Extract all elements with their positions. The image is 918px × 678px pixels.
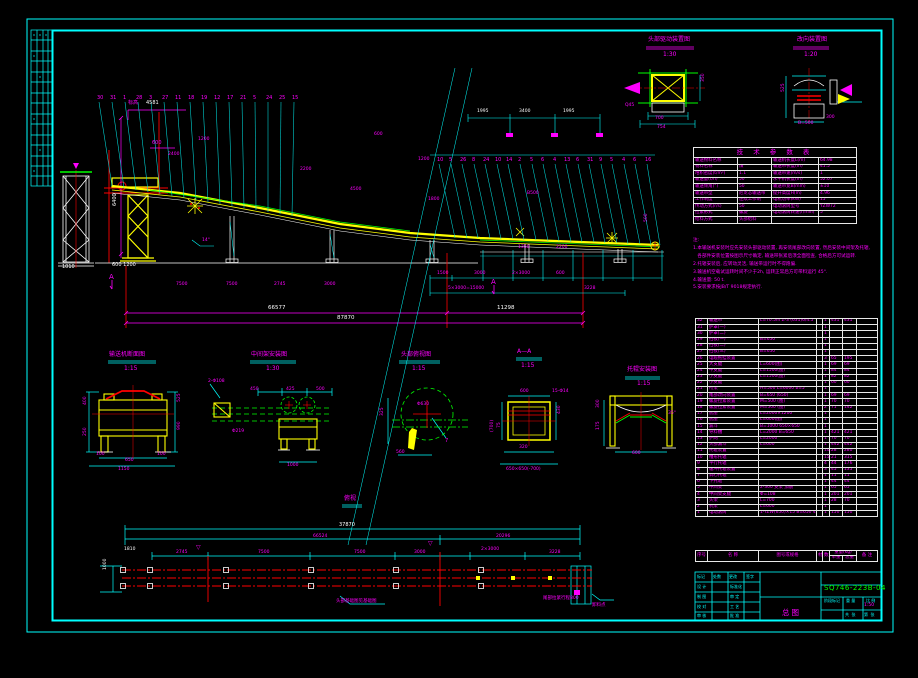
- annotation-label: 第 张: [864, 613, 875, 617]
- annotation-label: 600: [520, 390, 529, 395]
- note-line: 2.托辊安装后, 应转动灵活, 输送带运行时不得跑偏.: [693, 261, 878, 269]
- annotation-label: 20296: [496, 535, 510, 540]
- note-line: 5.安装要求按JB/T 9018规定执行.: [693, 284, 878, 292]
- balloon-leader-line: [216, 102, 220, 204]
- annotation-label: 990: [178, 421, 183, 430]
- item-balloon-number: 24: [483, 158, 489, 163]
- annotation-label: 2×3000: [481, 548, 499, 553]
- annotation-label: 1995: [477, 110, 488, 115]
- balloon-leader-line: [242, 102, 244, 208]
- annotation-label: 300: [597, 399, 602, 408]
- annotation-label: 俯视: [344, 496, 356, 502]
- annotation-label: 7500: [226, 283, 237, 288]
- bom-header: 序号 名 称 图号或规格 材料 数量 重量(kg) 备 注 单重 总重: [695, 550, 878, 562]
- annotation-label: 3400: [519, 110, 530, 115]
- annotation-label: 425: [286, 388, 295, 393]
- item-balloon-number: 21: [240, 96, 246, 101]
- annotation-label: 1150: [118, 468, 129, 473]
- note-line: 注:: [693, 237, 878, 245]
- annotation-label: 2745: [176, 551, 187, 556]
- annotation-label: 1500: [437, 272, 448, 277]
- item-balloon-number: 6: [576, 158, 579, 163]
- annotation-label: 2200: [300, 168, 311, 173]
- bom-col-name: 名 称: [708, 551, 759, 562]
- item-balloon-number: 19: [201, 96, 207, 101]
- bom-row: 1电动滚筒1-YZW(650)×15 B=650 45r/min 1150150: [696, 510, 878, 516]
- cad-drawing-page: 技 术 参 数 表 输送物料名称输送机长度L(m)64.98 物料名称煤输送带长…: [0, 0, 918, 678]
- annotation-label: 4500: [350, 188, 361, 193]
- bom-col-remark: 备 注: [857, 551, 878, 562]
- annotation-label: 500: [645, 213, 650, 222]
- item-balloon-number: 3: [149, 96, 152, 101]
- elevation-dimensions: [110, 68, 662, 545]
- annotation-label: 600 1200: [112, 263, 136, 268]
- annotation-label: 校 对: [697, 605, 706, 609]
- item-balloon-number: 5: [449, 158, 452, 163]
- drawing-number: SQ746-223B-04: [824, 585, 886, 592]
- annotation-label: 输送机断面图: [109, 352, 145, 358]
- annotation-label: 650: [125, 459, 134, 464]
- balloon-leader-line: [520, 164, 536, 240]
- annotation-label: 工 艺: [730, 605, 739, 609]
- annotation-label: 1350: [518, 246, 529, 251]
- annotation-label: 7500: [258, 551, 269, 556]
- item-balloon-number: 5: [253, 96, 256, 101]
- plan-view: [100, 505, 614, 606]
- annotation-label: 500: [316, 388, 325, 393]
- item-balloon-number: 18: [188, 96, 194, 101]
- section-view-trough-idler: [604, 377, 676, 452]
- detail-view-drive-device: [624, 47, 705, 128]
- item-balloon-number: 27: [162, 96, 168, 101]
- annotation-label: 重 量: [846, 599, 855, 603]
- detail-view-bend-device: [786, 47, 862, 124]
- annotation-label: Φ630: [417, 403, 429, 408]
- balloon-leader-line: [508, 164, 524, 240]
- annotation-label: 100: [157, 453, 166, 458]
- annotation-label: 头部基础图见基础图: [336, 600, 377, 605]
- annotation-label: 1:30: [266, 366, 279, 372]
- annotation-label: ▽: [428, 541, 433, 547]
- item-balloon-number: 31: [587, 158, 593, 163]
- annotation-label: 754: [657, 126, 666, 131]
- balloon-leader-line: [177, 102, 184, 198]
- annotation-label: 签字: [746, 575, 754, 579]
- tech-param-row: 输送量(t/h)50水平机长度(m)52.07: [694, 177, 857, 184]
- annotation-label: 600: [152, 141, 162, 146]
- annotation-label: 阶段标记: [824, 599, 840, 603]
- note-line: 各部件安装位置按图示尺寸确定, 输送带张紧后须全面检查, 合格后方可试运转.: [693, 253, 878, 261]
- support-bents: [226, 216, 626, 263]
- annotation-label: 1000: [104, 559, 109, 570]
- annotation-label: 3000: [324, 283, 335, 288]
- balloon-leader-line: [190, 102, 196, 200]
- annotation-label: 1:30: [663, 52, 676, 58]
- annotation-label: 1800: [428, 198, 439, 203]
- annotation-label: Φ219: [232, 430, 244, 435]
- annotation-label: 2-Φ108: [208, 380, 225, 385]
- annotation-label: 标高: [128, 101, 138, 106]
- section-view-a-a: [500, 358, 558, 464]
- annotation-label: 托辊安装图: [627, 367, 657, 373]
- balloon-leader-line: [203, 102, 208, 202]
- balloon-leader-line: [125, 102, 136, 190]
- annotation-label: 700: [655, 117, 664, 122]
- annotation-label: 450: [250, 388, 259, 393]
- annotation-label: 1810: [124, 548, 135, 553]
- annotation-label: 600: [632, 452, 641, 457]
- annotation-label: 66524: [313, 535, 327, 540]
- annotation-label: 3228: [549, 551, 560, 556]
- annotation-label: 设 计: [697, 585, 706, 589]
- annotation-label: 300: [826, 116, 835, 121]
- note-line: 4.输送量: 50 t.: [693, 277, 878, 285]
- item-balloon-number: 11: [175, 96, 181, 101]
- bom-col-spec: 图号或规格: [759, 551, 817, 562]
- annotation-label: 2200: [556, 246, 567, 251]
- item-balloon-number: 25: [279, 96, 285, 101]
- revision-register-table: [31, 30, 53, 186]
- tech-param-row: 传动方式(r/s)50电动滚筒型号YZW72: [694, 204, 857, 211]
- balloon-leader-line: [164, 102, 172, 196]
- bom-col-total-weight: 总重: [843, 556, 857, 561]
- annotation-label: 头部驱动装置图: [648, 37, 690, 43]
- annotation-label: 1000: [287, 464, 298, 469]
- annotation-label: 175: [597, 421, 602, 430]
- annotation-label: 3000: [414, 551, 425, 556]
- item-balloon-number: 17: [227, 96, 233, 101]
- annotation-label: 审 核: [697, 614, 706, 618]
- annotation-label: 7500: [176, 283, 187, 288]
- annotation-label: 87870: [337, 316, 355, 322]
- annotation-label: 共 张: [845, 613, 856, 617]
- annotation-label: 1200: [198, 138, 209, 143]
- item-balloon-number: 26: [460, 158, 466, 163]
- annotation-label: ▽: [196, 545, 201, 551]
- annotation-label: A: [109, 274, 114, 281]
- drawing-scale: 1:50: [864, 604, 874, 609]
- item-balloon-number: 8: [472, 158, 475, 163]
- item-balloon-number: 30: [97, 96, 103, 101]
- balloon-leader-line: [255, 102, 256, 210]
- item-balloon-number: 4: [553, 158, 556, 163]
- annotation-label: 430: [558, 405, 563, 414]
- annotation-label: 15-Φ14: [552, 390, 569, 395]
- tech-param-row: 工作制度连续工作制电机功率(kW)15: [694, 197, 857, 204]
- balloon-leader-line: [612, 164, 628, 244]
- annotation-label: 400: [84, 396, 89, 405]
- annotation-label: B=500: [798, 122, 813, 127]
- item-balloon-number: 6: [541, 158, 544, 163]
- annotation-label: 1:15: [124, 366, 137, 372]
- annotation-label: 尾部拉紧行程800: [543, 597, 579, 602]
- general-notes: 注:1.本输送机安装时应先安装头部驱动装置, 再安装尾部改向装置, 然后安装中间…: [693, 237, 878, 292]
- annotation-label: 600: [374, 133, 383, 138]
- tech-param-row: 拉紧形式螺旋电动滚筒转速(r/min)5: [694, 210, 857, 217]
- annotation-label: 525: [782, 83, 787, 92]
- bom-col-unit-weight: 单重: [830, 556, 843, 561]
- annotation-label: 处数: [713, 575, 721, 579]
- section-view-cross-section: [86, 361, 178, 466]
- tech-params-title: 技 术 参 数 表: [694, 148, 857, 158]
- item-balloon-number: 28: [136, 96, 142, 101]
- left-lattice-tower: [58, 163, 94, 268]
- annotation-label: 1:20: [804, 52, 817, 58]
- item-balloon-number: 9: [599, 158, 602, 163]
- item-balloon-number: 16: [645, 158, 651, 163]
- annotation-label: 350: [702, 73, 707, 82]
- annotation-label: 更改: [729, 575, 737, 579]
- balloon-leader-line: [647, 164, 660, 245]
- annotation-label: 14°: [202, 239, 210, 244]
- bom-col-qty: 数量: [823, 551, 830, 562]
- annotation-label: 37870: [339, 523, 355, 528]
- annotation-label: 560: [396, 451, 405, 456]
- item-balloon-number: 5: [610, 158, 613, 163]
- bom-table: 32输送带L=70.5m Z-3 (631)6/4.5 1431431 31护罩…: [695, 318, 878, 517]
- item-balloon-number: 15: [292, 96, 298, 101]
- section-view-top-detail: [388, 361, 468, 455]
- annotation-label: 525: [178, 393, 183, 402]
- annotation-label: 比 例: [866, 599, 875, 603]
- annotation-label: 1995: [563, 110, 574, 115]
- annotation-label: 改向装置图: [797, 37, 827, 43]
- annotation-label: 600: [556, 272, 565, 277]
- annotation-label: (700): [491, 420, 496, 432]
- bom-col-no: 序号: [696, 551, 708, 562]
- annotation-label: 11298: [497, 306, 515, 312]
- annotation-label: A—A: [517, 349, 531, 355]
- balloon-leader-line: [439, 164, 455, 238]
- balloon-leader-line: [112, 102, 124, 188]
- tech-param-row: 物料名称煤输送带长度(m)41.5: [694, 164, 857, 171]
- annotation-label: 2400: [168, 153, 179, 158]
- annotation-label: Q45: [625, 104, 634, 109]
- item-balloon-number: 31: [110, 96, 116, 101]
- tech-param-row: 输送带型尼龙芯输送带提升高度H(m)4.96: [694, 190, 857, 197]
- balloon-leader-line: [99, 102, 112, 186]
- annotation-label: 35°: [668, 412, 676, 417]
- annotation-label: 1010: [62, 265, 75, 270]
- section-view-side-detail: [210, 361, 332, 462]
- item-balloon-number: 4: [622, 158, 625, 163]
- annotation-label: 标记: [697, 575, 705, 579]
- annotation-label: B500: [527, 192, 539, 197]
- annotation-label: 1:15: [637, 381, 650, 387]
- annotation-label: 制 图: [697, 595, 706, 599]
- balloon-leader-line: [229, 102, 232, 206]
- annotation-label: 6400: [113, 193, 118, 206]
- annotation-label: 批 准: [730, 614, 739, 618]
- balloon-leader-line: [292, 102, 294, 216]
- annotation-label: 5×3000=15000: [448, 287, 484, 292]
- annotation-label: 中间架安装图: [251, 352, 287, 358]
- note-line: 1.本输送机安装时应先安装头部驱动装置, 再安装尾部改向装置, 然后安装中间架及…: [693, 245, 878, 253]
- item-balloon-number: 10: [495, 158, 501, 163]
- annotation-label: 3228: [584, 287, 595, 292]
- item-balloon-number: 1: [123, 96, 126, 101]
- annotation-label: 320: [519, 446, 528, 451]
- item-balloon-number: 13: [564, 158, 570, 163]
- drawing-title: 总图: [782, 609, 801, 617]
- annotation-label: 2×3000: [512, 272, 530, 277]
- balloon-leader-line: [589, 164, 605, 243]
- annotation-label: 审 定: [730, 595, 739, 599]
- annotation-label: A: [491, 279, 496, 286]
- annotation-label: 66577: [268, 306, 286, 312]
- item-balloon-number: 24: [266, 96, 272, 101]
- tech-param-row: 给料方式头部给料: [694, 217, 857, 224]
- annotation-label: 100: [96, 453, 105, 458]
- annotation-label: 7: [445, 439, 448, 444]
- annotation-label: 4581: [146, 101, 159, 106]
- tech-param-row: 堆积密度(t/m³)1.1输送带速(m/s)1: [694, 171, 857, 178]
- annotation-label: 1:15: [412, 366, 425, 372]
- annotation-label: 2745: [274, 283, 285, 288]
- annotation-label: 1200: [418, 158, 429, 163]
- annotation-label: 头部俯视图: [401, 352, 431, 358]
- annotation-label: 卸料点: [592, 604, 606, 609]
- tech-param-row: 输送倾角(°)50输送带宽B(mm)±10: [694, 184, 857, 191]
- note-line: 3.输送机空载试运转时间不少于2h, 运转正常后方可带料运行 45°.: [693, 269, 878, 277]
- annotation-label: 75: [498, 422, 503, 428]
- item-balloon-number: 14: [506, 158, 512, 163]
- annotation-label: 250: [84, 427, 89, 436]
- item-balloon-number: 12: [214, 96, 220, 101]
- annotation-label: 650×650(-700): [506, 468, 541, 473]
- annotation-label: 3000: [474, 272, 485, 277]
- item-balloon-number: 10: [437, 158, 443, 163]
- balloon-leader-line: [635, 164, 651, 245]
- annotation-label: 7500: [354, 551, 365, 556]
- annotation-label: 标准化: [730, 585, 742, 589]
- tech-param-row: 输送物料名称输送机长度L(m)64.98: [694, 158, 857, 165]
- annotation-label: 325: [381, 407, 386, 416]
- item-balloon-number: 5: [530, 158, 533, 163]
- tech-params-table: 技 术 参 数 表 输送物料名称输送机长度L(m)64.98 物料名称煤输送带长…: [693, 147, 857, 224]
- balloon-leader-line: [280, 102, 281, 214]
- balloon-leader-line: [485, 164, 501, 239]
- item-balloon-number: 2: [518, 158, 521, 163]
- item-balloon-number: 6: [633, 158, 636, 163]
- annotation-label: 1:15: [521, 363, 534, 369]
